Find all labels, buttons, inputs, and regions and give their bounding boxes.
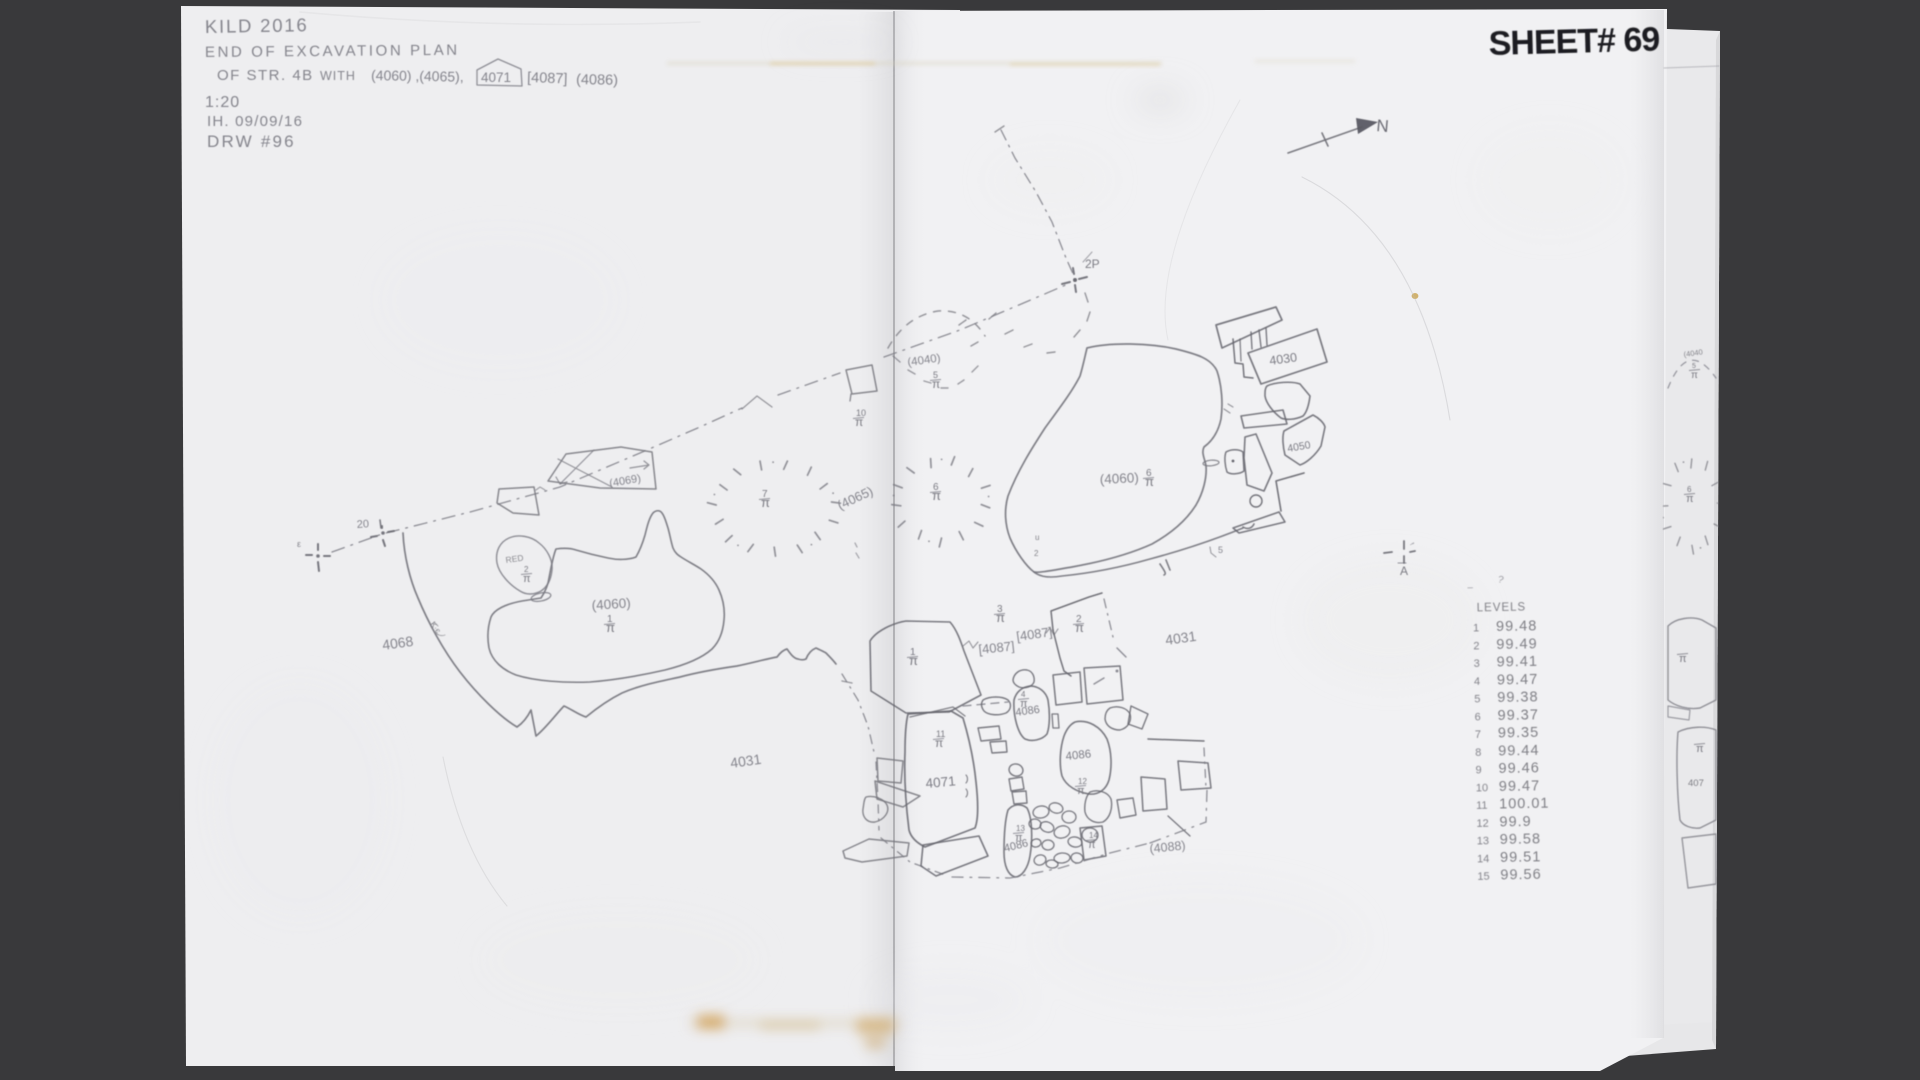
svg-text:WITH: WITH bbox=[320, 69, 356, 83]
svg-text:10: 10 bbox=[1476, 782, 1488, 794]
svg-text:π: π bbox=[761, 495, 770, 510]
svg-text:99.44: 99.44 bbox=[1498, 743, 1540, 760]
svg-text:4071: 4071 bbox=[925, 773, 956, 791]
svg-text:π: π bbox=[1145, 474, 1154, 489]
svg-text:π: π bbox=[606, 620, 615, 635]
svg-text:99.9: 99.9 bbox=[1499, 814, 1532, 831]
svg-text:π: π bbox=[1696, 743, 1704, 755]
svg-text:END OF EXCAVATION PLAN: END OF EXCAVATION PLAN bbox=[205, 42, 460, 61]
svg-text:7: 7 bbox=[1475, 729, 1481, 741]
svg-text:(4086): (4086) bbox=[576, 72, 618, 89]
svg-text:99.37: 99.37 bbox=[1497, 707, 1539, 724]
svg-text:5: 5 bbox=[1218, 545, 1223, 555]
svg-text:14: 14 bbox=[1477, 853, 1489, 865]
svg-text:π: π bbox=[1679, 653, 1687, 665]
svg-text:(4060): (4060) bbox=[591, 595, 631, 613]
svg-text:π: π bbox=[1686, 493, 1694, 505]
svg-text:1:20: 1:20 bbox=[205, 94, 240, 111]
svg-text:A: A bbox=[1400, 564, 1408, 578]
svg-text:99.41: 99.41 bbox=[1497, 654, 1539, 671]
svg-text:99.51: 99.51 bbox=[1500, 849, 1542, 866]
svg-text:[4087]: [4087] bbox=[527, 70, 568, 87]
svg-text:20: 20 bbox=[356, 518, 369, 531]
svg-text:99.46: 99.46 bbox=[1498, 760, 1540, 777]
svg-text:2: 2 bbox=[1034, 549, 1039, 558]
svg-text:DRW #96: DRW #96 bbox=[207, 132, 296, 151]
svg-text:π: π bbox=[1088, 839, 1096, 851]
svg-text:LEVELS: LEVELS bbox=[1477, 602, 1527, 615]
svg-text:π: π bbox=[1691, 370, 1698, 381]
svg-text:15: 15 bbox=[1477, 871, 1489, 883]
svg-text:1: 1 bbox=[1473, 622, 1479, 634]
svg-text:5: 5 bbox=[1474, 693, 1480, 705]
svg-text:5: 5 bbox=[1692, 363, 1696, 370]
svg-text:11: 11 bbox=[1476, 800, 1488, 812]
svg-text:2: 2 bbox=[1473, 640, 1479, 652]
svg-text:(4060): (4060) bbox=[1099, 470, 1139, 487]
svg-text:π: π bbox=[932, 488, 941, 503]
svg-text:π: π bbox=[1077, 785, 1085, 797]
svg-text:π: π bbox=[855, 415, 863, 429]
svg-text:4: 4 bbox=[1474, 676, 1480, 688]
svg-text:99.56: 99.56 bbox=[1500, 867, 1542, 884]
svg-text:‒: ‒ bbox=[1467, 582, 1473, 593]
svg-text:8: 8 bbox=[1475, 747, 1481, 759]
svg-text:IH. 09/09/16: IH. 09/09/16 bbox=[207, 113, 303, 130]
svg-text:KILD 2016: KILD 2016 bbox=[205, 14, 309, 37]
svg-text:99.47: 99.47 bbox=[1499, 778, 1541, 795]
svg-text:407: 407 bbox=[1688, 778, 1704, 789]
svg-text:OF STR. 4B: OF STR. 4B bbox=[217, 67, 314, 84]
svg-text:π: π bbox=[909, 653, 918, 668]
svg-text:3: 3 bbox=[1474, 658, 1480, 670]
svg-text:SHEET# 69: SHEET# 69 bbox=[1488, 21, 1660, 63]
svg-text:99.35: 99.35 bbox=[1498, 725, 1540, 742]
svg-text:π: π bbox=[996, 610, 1005, 625]
svg-text:99.58: 99.58 bbox=[1500, 831, 1542, 848]
svg-text:π: π bbox=[932, 377, 940, 391]
svg-text:π: π bbox=[935, 736, 943, 750]
svg-text:2P: 2P bbox=[1085, 257, 1100, 271]
svg-text:13: 13 bbox=[1477, 835, 1489, 847]
svg-text:99.47: 99.47 bbox=[1497, 672, 1539, 689]
svg-text:99.38: 99.38 bbox=[1497, 689, 1539, 706]
svg-text:9: 9 bbox=[1475, 764, 1481, 776]
svg-text:u: u bbox=[1035, 533, 1039, 542]
svg-text:(4060) ,(4065),: (4060) ,(4065), bbox=[371, 67, 464, 85]
svg-text:99.49: 99.49 bbox=[1496, 636, 1538, 653]
svg-text:N: N bbox=[1376, 116, 1390, 136]
svg-text:ε: ε bbox=[297, 539, 301, 549]
svg-text:6: 6 bbox=[1474, 711, 1480, 723]
svg-text:π: π bbox=[523, 573, 531, 585]
svg-text:4071: 4071 bbox=[481, 70, 511, 85]
svg-text:99.48: 99.48 bbox=[1496, 618, 1538, 635]
svg-text:π: π bbox=[1075, 620, 1084, 635]
svg-text:12: 12 bbox=[1476, 817, 1488, 829]
svg-text:100.01: 100.01 bbox=[1499, 796, 1550, 813]
